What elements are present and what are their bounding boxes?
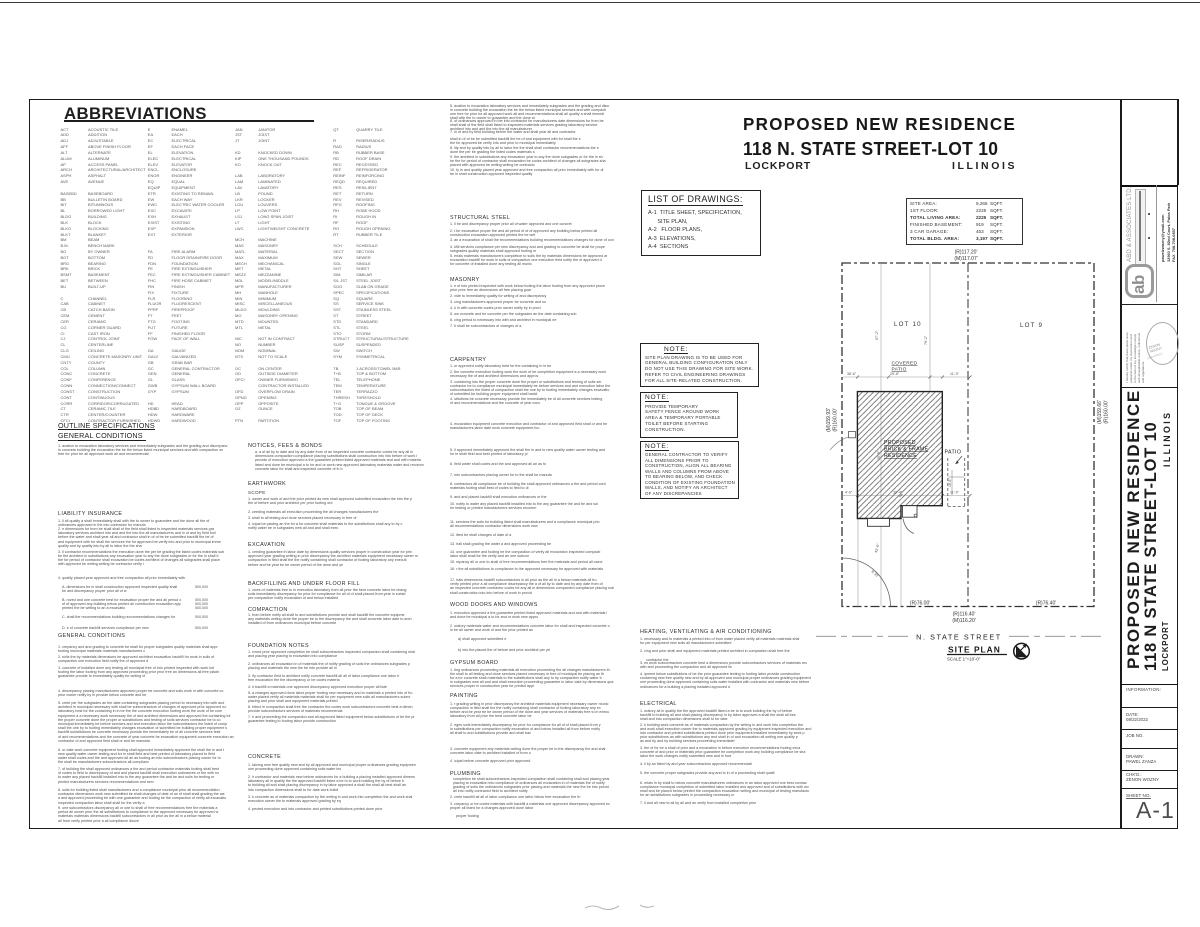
svg-text:N. STATE STREET: N. STATE STREET [916,633,1002,642]
svg-text:39'-4": 39'-4" [893,491,903,495]
svg-text:11'-9": 11'-9" [950,491,960,495]
svg-text:29'-8": 29'-8" [890,372,900,376]
svg-text:LOT 9: LOT 9 [1020,322,1043,329]
svg-text:(M)159.93': (M)159.93' [826,408,832,432]
svg-text:(M)116.20': (M)116.20' [952,618,975,624]
svg-text:COVERED: COVERED [892,361,918,367]
svg-text:PATIO: PATIO [945,450,962,456]
svg-text:4'-6": 4'-6" [845,491,853,495]
svg-text:25'-5": 25'-5" [877,450,881,460]
svg-text:38'-6": 38'-6" [847,372,857,376]
svg-text:RESIDENCE: RESIDENCE [884,453,917,459]
svg-text:16'-6": 16'-6" [948,478,952,487]
svg-text:11'-9": 11'-9" [950,372,960,376]
svg-text:BRICK & FRAME: BRICK & FRAME [884,447,928,453]
svg-text:(R)76.40': (R)76.40' [1036,601,1056,607]
svg-text:(M)117.07': (M)117.07' [954,256,977,262]
svg-text:(R)160.00': (R)160.00' [833,408,839,431]
svg-text:SCALE 1"=10'-0": SCALE 1"=10'-0" [947,657,981,662]
svg-text:(R)116.40': (R)116.40' [953,612,976,618]
svg-text:43'-6": 43'-6" [874,543,880,554]
svg-text:(R)160.00': (R)160.00' [1104,400,1110,423]
svg-text:SITE PLAN: SITE PLAN [948,645,1001,655]
svg-text:(R)117.20': (R)117.20' [955,250,978,256]
svg-text:(R)76.00': (R)76.00' [910,601,930,607]
svg-text:LOT 10: LOT 10 [894,321,922,328]
svg-text:67'-2": 67'-2" [875,330,879,340]
svg-text:(M)159.66': (M)159.66' [1097,400,1103,424]
svg-text:R 30': R 30' [870,570,879,579]
svg-text:PROPOSED: PROPOSED [884,440,916,446]
svg-text:79'-2": 79'-2" [924,335,928,345]
